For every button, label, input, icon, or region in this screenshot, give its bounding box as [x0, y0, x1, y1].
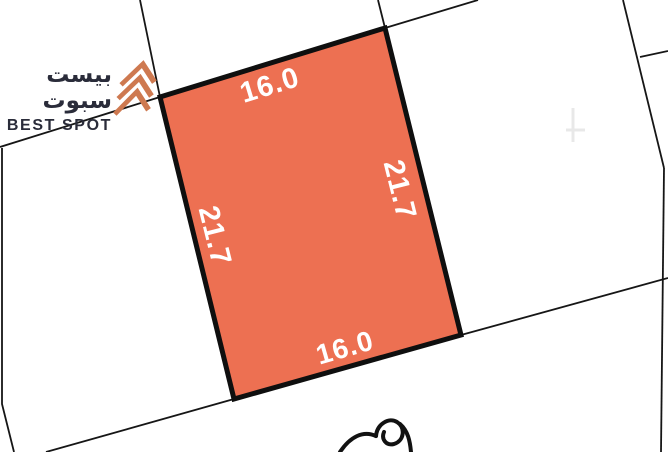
- survey-cross-mark: [566, 108, 585, 142]
- boundary-line-left-edge: [2, 148, 14, 452]
- logo-title-arabic: بيست سبوت: [6, 62, 112, 115]
- plot-map: بيست سبوت BEST SPOT 16.0 21.7 21.7 16.0: [0, 0, 668, 452]
- boundary-line-right-edge: [661, 168, 664, 452]
- boundary-line-right-extension: [378, 0, 385, 28]
- boundary-line-top-right: [385, 0, 478, 28]
- boundary-line-bottom-right: [461, 278, 668, 335]
- boundary-line-bottom-left: [46, 399, 234, 452]
- boundary-line-right-branch: [640, 51, 668, 57]
- best-spot-logo: بيست سبوت BEST SPOT: [6, 62, 112, 135]
- logo-title-english: BEST SPOT: [6, 117, 112, 135]
- best-spot-chevron-logo-icon: [110, 55, 160, 125]
- clipped-arabic-annotation: [340, 420, 411, 452]
- boundary-line-top-right-steep: [623, 0, 664, 168]
